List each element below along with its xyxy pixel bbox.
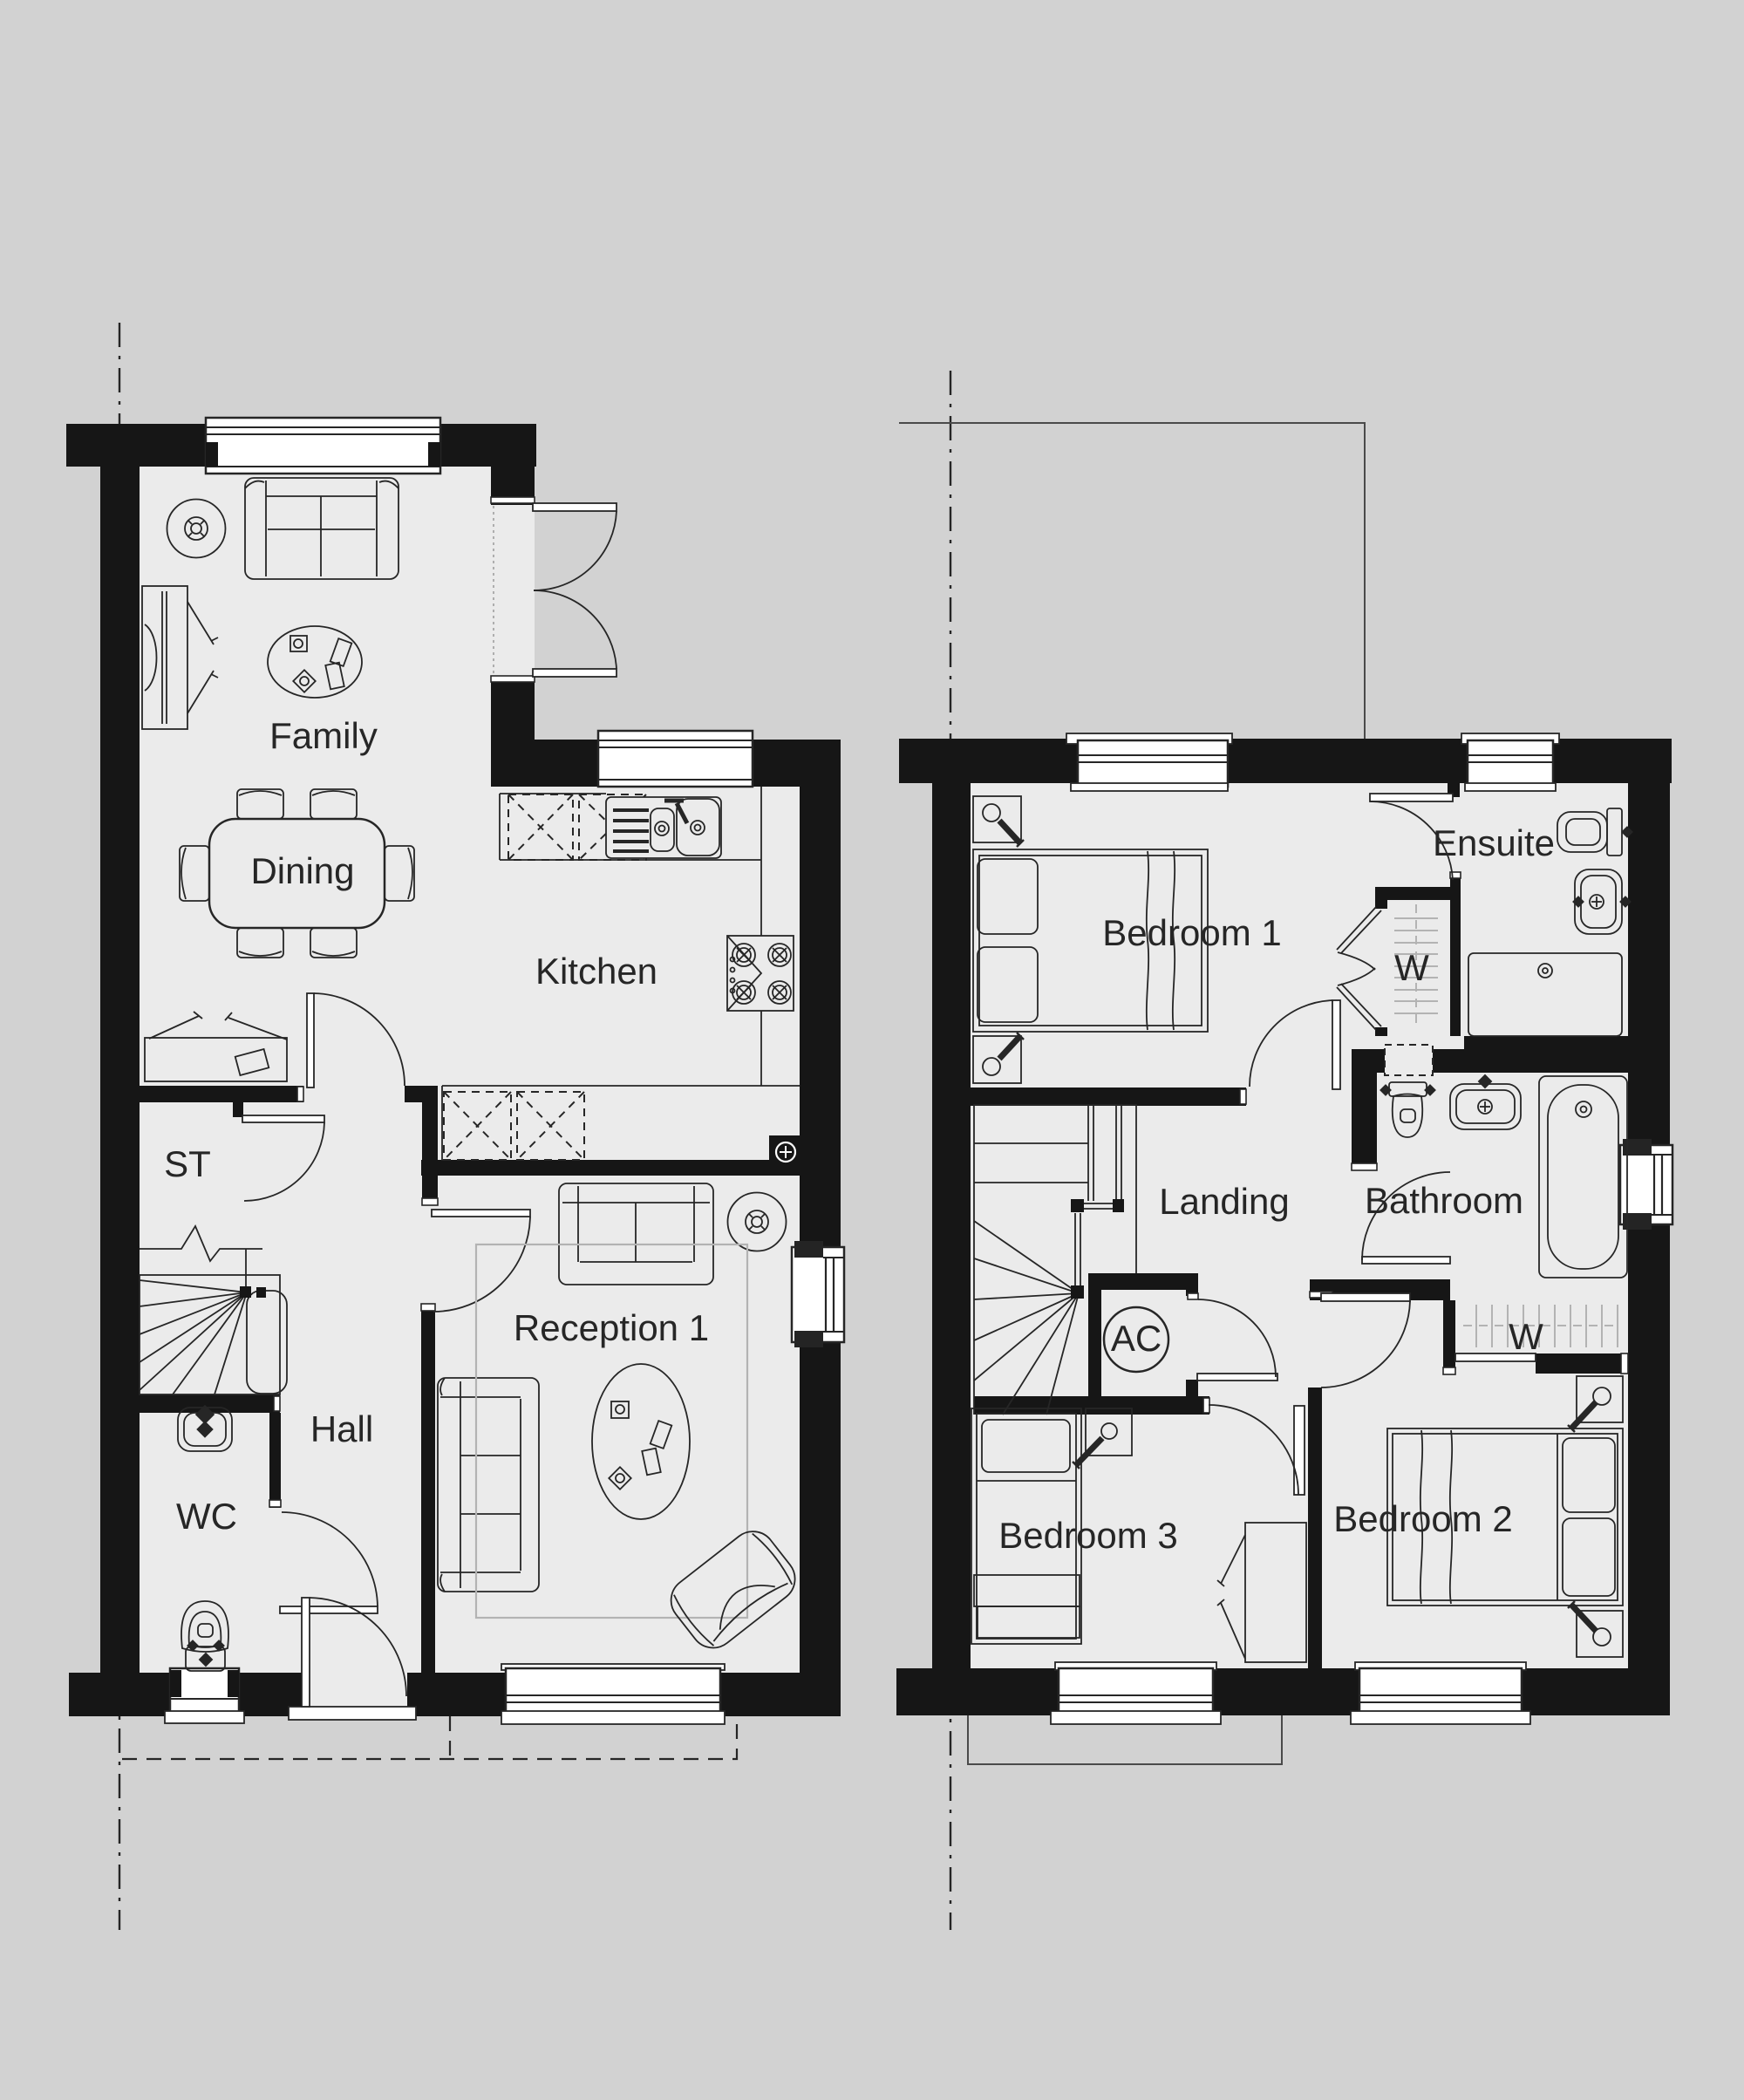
svg-text:W: W <box>1394 947 1429 988</box>
svg-text:Dining: Dining <box>250 850 354 891</box>
svg-text:Family: Family <box>269 715 378 756</box>
svg-text:Ensuite: Ensuite <box>1433 822 1555 863</box>
svg-text:Kitchen: Kitchen <box>535 951 657 992</box>
svg-text:W: W <box>1509 1316 1543 1357</box>
svg-text:Bathroom: Bathroom <box>1365 1180 1523 1221</box>
svg-text:Bedroom 3: Bedroom 3 <box>998 1515 1177 1556</box>
svg-text:AC: AC <box>1111 1318 1162 1359</box>
svg-text:ST: ST <box>164 1143 211 1184</box>
svg-text:Landing: Landing <box>1159 1181 1289 1222</box>
svg-text:Hall: Hall <box>310 1408 373 1449</box>
svg-text:Bedroom 1: Bedroom 1 <box>1102 912 1281 953</box>
svg-text:WC: WC <box>176 1496 237 1537</box>
svg-text:Bedroom 2: Bedroom 2 <box>1333 1498 1512 1539</box>
svg-text:Reception 1: Reception 1 <box>514 1307 709 1348</box>
